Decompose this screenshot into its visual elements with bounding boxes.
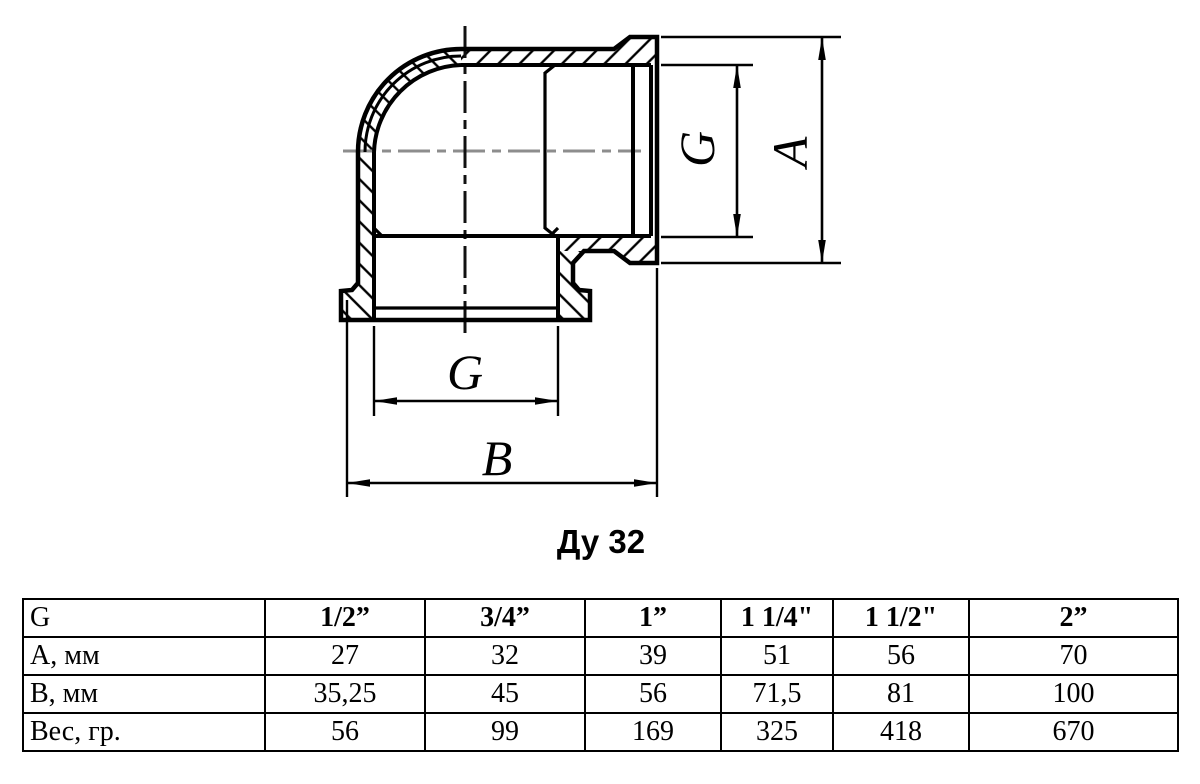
dim-label-g-right: G — [669, 131, 725, 167]
extension-lines — [347, 37, 841, 497]
elbow-section-drawing: G A G B — [0, 0, 1200, 590]
table-cell: 99 — [425, 713, 585, 751]
corner-round-edge — [365, 56, 461, 152]
dim-label-g-bottom: G — [447, 344, 483, 400]
dimensions-table: G 1/2” 3/4” 1” 1 1/4" 1 1/2" 2” A, мм 27… — [22, 598, 1179, 752]
bore-lines — [374, 65, 651, 320]
table-header-row: G 1/2” 3/4” 1” 1 1/4" 1 1/2" 2” — [23, 599, 1178, 637]
table-cell: 325 — [721, 713, 833, 751]
drawing-caption: Ду 32 — [495, 523, 707, 561]
catalog-page: G A G B Ду 32 G 1/2” 3/4” 1” 1 1/4" 1 1/… — [0, 0, 1200, 784]
table-cell: 45 — [425, 675, 585, 713]
table-cell: 39 — [585, 637, 721, 675]
table-cell: 56 — [265, 713, 425, 751]
row-label: B, мм — [23, 675, 265, 713]
header-cell-g: G — [23, 599, 265, 637]
header-cell-size: 1 1/2" — [833, 599, 969, 637]
table-cell: 71,5 — [721, 675, 833, 713]
header-cell-size: 1/2” — [265, 599, 425, 637]
outer-contour — [341, 37, 657, 320]
table-cell: 418 — [833, 713, 969, 751]
table-row-weight: Вес, гр. 56 99 169 325 418 670 — [23, 713, 1178, 751]
row-label: Вес, гр. — [23, 713, 265, 751]
header-cell-size: 3/4” — [425, 599, 585, 637]
table-cell: 70 — [969, 637, 1178, 675]
centerlines — [343, 26, 641, 334]
header-cell-size: 1 1/4" — [721, 599, 833, 637]
row-label: A, мм — [23, 637, 265, 675]
table-cell: 27 — [265, 637, 425, 675]
header-cell-size: 2” — [969, 599, 1178, 637]
table-cell: 100 — [969, 675, 1178, 713]
table-cell: 81 — [833, 675, 969, 713]
table-cell: 169 — [585, 713, 721, 751]
header-cell-size: 1” — [585, 599, 721, 637]
table-cell: 51 — [721, 637, 833, 675]
table-row-b: B, мм 35,25 45 56 71,5 81 100 — [23, 675, 1178, 713]
table-cell: 56 — [833, 637, 969, 675]
table-cell: 32 — [425, 637, 585, 675]
dim-label-b: B — [482, 430, 513, 486]
table-row-a: A, мм 27 32 39 51 56 70 — [23, 637, 1178, 675]
dim-label-a: A — [762, 136, 818, 170]
table-cell: 56 — [585, 675, 721, 713]
table-cell: 35,25 — [265, 675, 425, 713]
table-cell: 670 — [969, 713, 1178, 751]
